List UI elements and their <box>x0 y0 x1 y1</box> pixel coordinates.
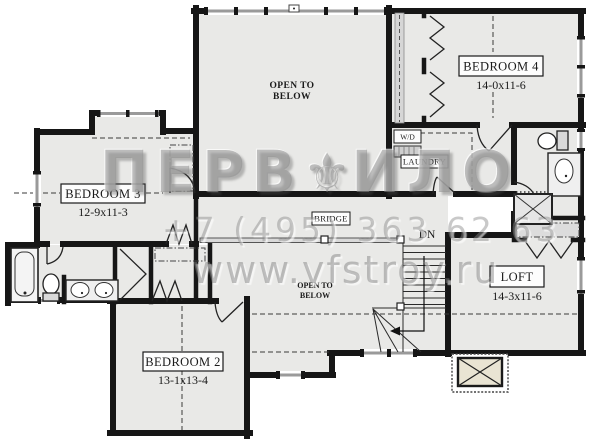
bridge-label: BRIDGE <box>312 212 350 225</box>
window-bottom-landing <box>360 349 417 357</box>
svg-text:BELOW: BELOW <box>300 291 330 300</box>
bathtub <box>11 248 38 302</box>
bedroom3-name: BEDROOM 3 <box>65 187 140 201</box>
loft-label: LOFT 14-3x11-6 <box>490 266 544 303</box>
bedroom2-name: BEDROOM 2 <box>145 355 220 369</box>
window-bottom-open-area <box>276 371 305 379</box>
wd-text: W/D <box>400 133 415 142</box>
window-bath-right <box>577 129 585 151</box>
chimney <box>452 354 508 392</box>
window-bedroom4-right <box>577 36 585 98</box>
svg-text:OPEN TO: OPEN TO <box>297 281 333 290</box>
bedroom4-name: BEDROOM 4 <box>463 60 539 74</box>
vanity-right-sink <box>548 153 581 196</box>
stairs-down-label: DN <box>419 229 436 241</box>
bedroom4-dims: 14-0x11-6 <box>476 78 526 92</box>
bedroom3-dims: 12-9x11-3 <box>78 205 128 219</box>
laundry-text: LAUNDRY <box>403 157 446 167</box>
washer-dryer-label: W/D <box>394 130 421 143</box>
shower-stall <box>514 194 552 224</box>
window-bedroom3-left <box>33 171 41 207</box>
laundry-label: LAUNDRY <box>401 155 448 168</box>
open-to-below-small-label: OPEN TO BELOW <box>297 281 333 300</box>
window-loft-right <box>577 257 585 294</box>
window-bedroom3-dormer <box>97 110 159 117</box>
open-to-below-main-label: OPEN TO BELOW <box>270 81 315 102</box>
loft-name: LOFT <box>501 270 534 284</box>
svg-text:OPEN TO: OPEN TO <box>270 81 315 91</box>
wall-chase-strip <box>395 13 404 123</box>
floor-plan-drawing: BEDROOM 3 12-9x11-3 BEDROOM 4 14-0x11-6 … <box>0 0 600 444</box>
bridge-text: BRIDGE <box>314 214 347 224</box>
loft-dims: 14-3x11-6 <box>492 289 542 303</box>
svg-text:BELOW: BELOW <box>273 92 311 102</box>
floor-plan-page: BEDROOM 3 12-9x11-3 BEDROOM 4 14-0x11-6 … <box>0 0 600 444</box>
vanity-double-sink <box>66 280 118 301</box>
toilet-left <box>43 274 59 301</box>
bedroom2-dims: 13-1x13-4 <box>158 373 208 387</box>
window-top-open-room <box>204 5 388 15</box>
